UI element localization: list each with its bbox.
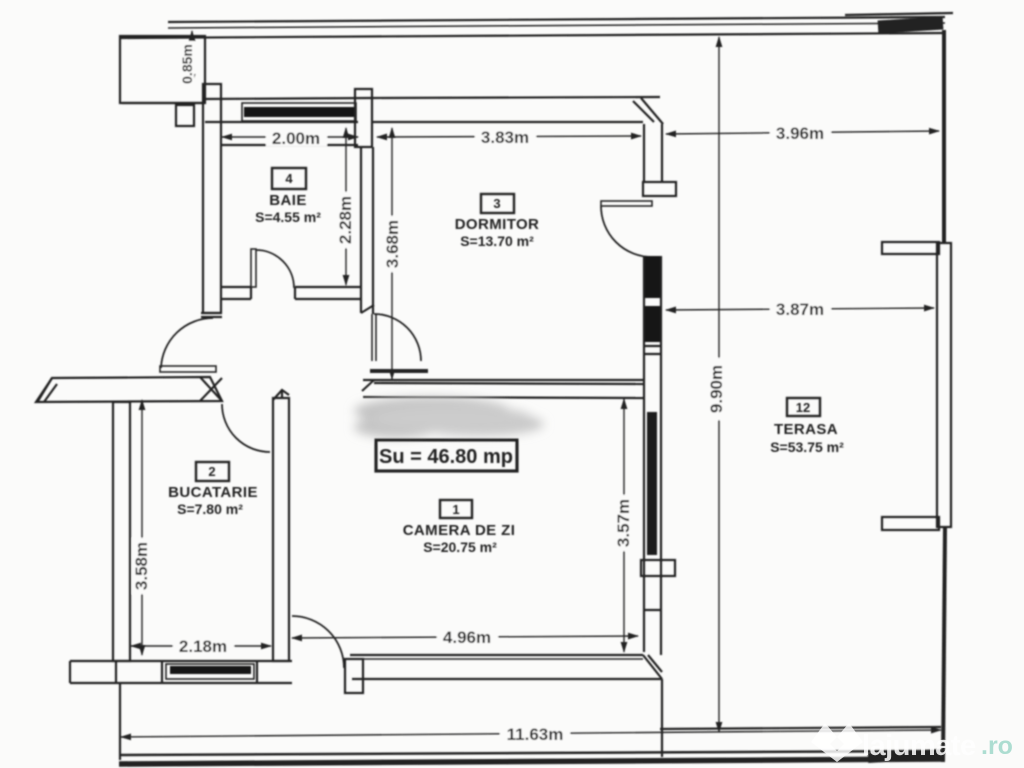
svg-text:12: 12 [796, 400, 810, 415]
svg-text:3.58m: 3.58m [132, 542, 151, 590]
svg-text:.ro: .ro [981, 732, 1013, 760]
svg-text:9.90m: 9.90m [707, 365, 726, 413]
svg-text:S=20.75 m²: S=20.75 m² [423, 539, 497, 555]
svg-text:Su = 46.80 mp: Su = 46.80 mp [379, 446, 513, 468]
svg-text:3.68m: 3.68m [383, 220, 402, 268]
svg-text:3.87m: 3.87m [776, 300, 824, 319]
svg-text:TERASA: TERASA [774, 421, 838, 438]
svg-text:BAIE: BAIE [269, 192, 306, 209]
svg-text:S=7.80 m²: S=7.80 m² [177, 501, 243, 517]
svg-text:2: 2 [208, 464, 215, 479]
svg-text:2.28m: 2.28m [336, 196, 355, 244]
svg-text:2.18m: 2.18m [179, 637, 227, 656]
svg-text:S=13.70 m²: S=13.70 m² [460, 233, 534, 249]
svg-text:3.57m: 3.57m [614, 499, 633, 547]
svg-text:S=4.55 m²: S=4.55 m² [255, 209, 321, 225]
svg-text:3.83m: 3.83m [481, 128, 529, 147]
svg-text:4.96m: 4.96m [443, 628, 491, 647]
svg-text:lajumate: lajumate [862, 730, 976, 762]
svg-text:3: 3 [493, 196, 500, 211]
svg-text:4: 4 [285, 171, 293, 186]
svg-text:BUCATARIE: BUCATARIE [168, 484, 258, 501]
svg-text:0.85m: 0.85m [179, 44, 195, 84]
svg-text:2.00m: 2.00m [272, 129, 320, 148]
svg-text:CAMERA DE ZI: CAMERA DE ZI [403, 522, 516, 539]
svg-text:11.63m: 11.63m [507, 725, 564, 744]
svg-text:3.96m: 3.96m [776, 124, 824, 143]
svg-text:S=53.75 m²: S=53.75 m² [770, 439, 844, 455]
svg-text:1: 1 [452, 502, 459, 517]
svg-text:DORMITOR: DORMITOR [455, 216, 540, 233]
